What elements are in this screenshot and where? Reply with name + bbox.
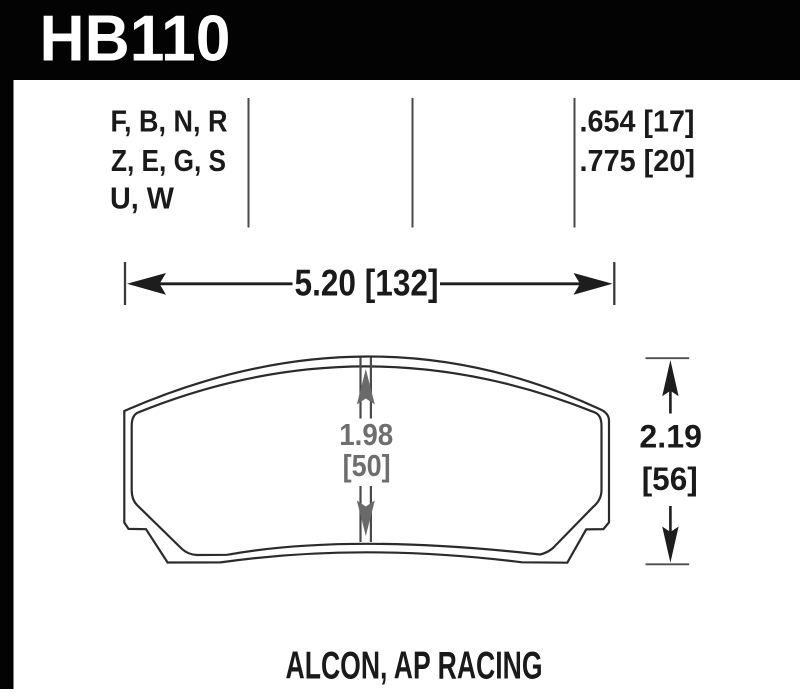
svg-text:ALCON, AP RACING: ALCON, AP RACING: [286, 645, 543, 688]
svg-text:[56]: [56]: [642, 461, 698, 497]
svg-text:Z, E, G, S: Z, E, G, S: [111, 143, 226, 178]
svg-text:2.19: 2.19: [639, 418, 702, 454]
svg-text:5.20 [132]: 5.20 [132]: [295, 263, 439, 304]
svg-text:U, W: U, W: [110, 181, 175, 216]
svg-text:1.98: 1.98: [339, 417, 393, 452]
svg-text:.775 [20]: .775 [20]: [580, 143, 696, 178]
svg-text:F, B, N, R: F, B, N, R: [111, 104, 228, 139]
svg-text:HB110: HB110: [40, 2, 231, 75]
svg-text:.654 [17]: .654 [17]: [580, 104, 695, 139]
svg-text:[50]: [50]: [343, 448, 391, 483]
